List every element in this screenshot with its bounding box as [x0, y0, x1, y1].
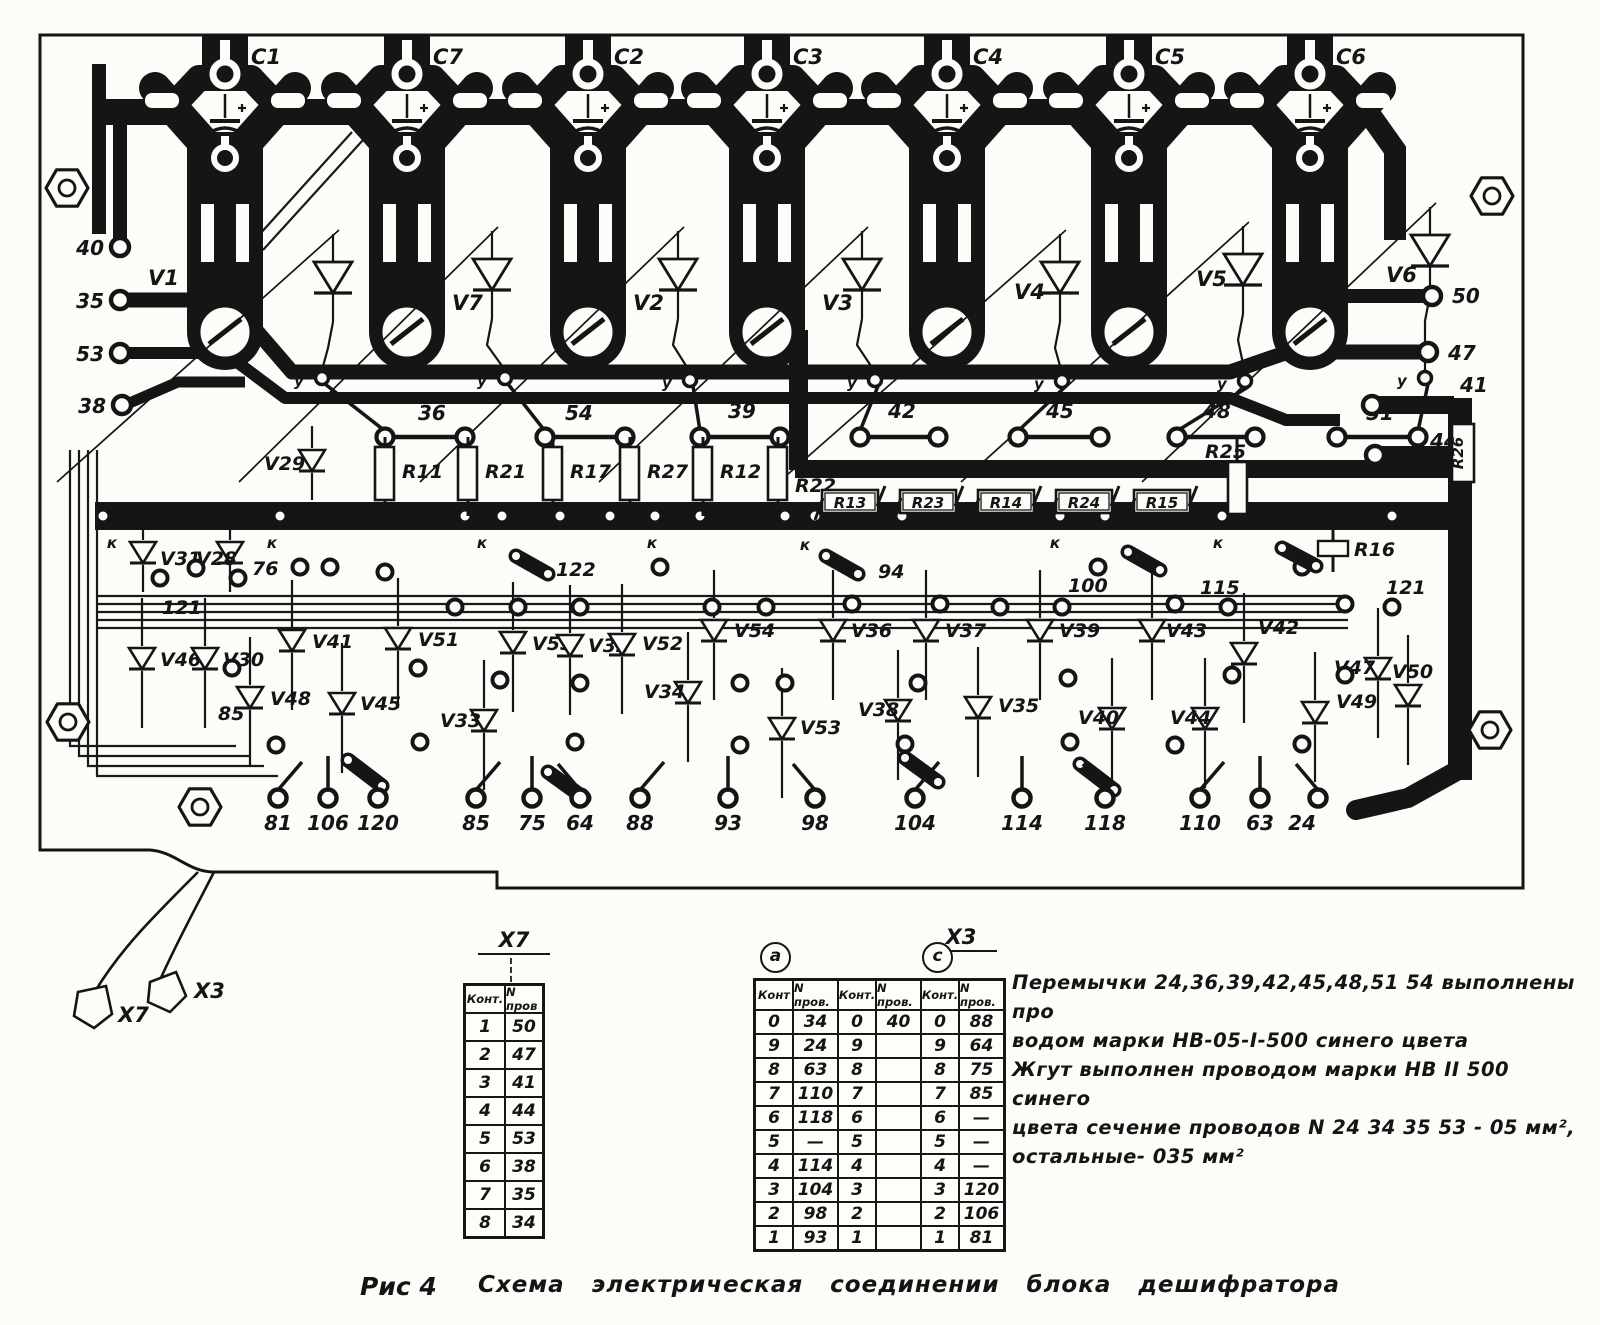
figure-number: Рис 4	[360, 1272, 437, 1301]
table-cell: —	[959, 1154, 1004, 1178]
jumper-pad	[1010, 429, 1027, 446]
capacitor-label: C3	[793, 45, 823, 69]
jumper-pad	[692, 429, 709, 446]
table-cell: 93	[793, 1226, 838, 1250]
table-header-cell: N пров.	[959, 980, 1004, 1010]
resistor-label: R24	[1068, 494, 1100, 512]
bottom-pad	[807, 790, 824, 807]
capacitor-unit	[1049, 36, 1209, 370]
junction-pad	[1295, 737, 1310, 752]
table-cell: 114	[793, 1154, 838, 1178]
jumper-pad	[1169, 429, 1186, 446]
edge-pad-right	[1419, 343, 1437, 361]
table-cell: 2	[838, 1202, 876, 1226]
junction-pad	[1338, 668, 1353, 683]
table-header-cell: Конт.	[921, 980, 959, 1010]
diode-symbol	[279, 630, 305, 651]
junction-pad	[573, 676, 588, 691]
solder-bar-hole	[512, 552, 520, 560]
mounting-hole	[1471, 178, 1513, 214]
table-cell: 81	[959, 1226, 1004, 1250]
junction-pad	[705, 600, 720, 615]
diode-label: V40	[1078, 707, 1119, 729]
resistor-label: R11	[402, 461, 443, 483]
diode-symbol	[913, 620, 939, 641]
table-cell: 1	[755, 1226, 793, 1250]
table-cell: 64	[959, 1034, 1004, 1058]
x7-flag-label: X7	[116, 1003, 149, 1027]
jumper-pad	[1329, 429, 1346, 446]
resistor-label: R15	[1146, 494, 1178, 512]
junction-pad	[269, 738, 284, 753]
solder-bar-hole	[934, 778, 942, 786]
edge-pad-left-label: 40	[75, 236, 104, 260]
gate-jumper-link	[325, 384, 385, 431]
resistor-label: R14	[990, 494, 1022, 512]
junction-pad	[1061, 671, 1076, 686]
gate-pad	[1056, 375, 1069, 388]
wire-number: 121	[1386, 577, 1426, 599]
x3-flag-label: X3	[192, 979, 225, 1003]
table-cell: 104	[793, 1178, 838, 1202]
diode-label: V35	[998, 695, 1039, 717]
diode-symbol	[1139, 620, 1165, 641]
table-cell: 118	[793, 1106, 838, 1130]
capacitor-unit	[1230, 36, 1390, 370]
pad-lead	[278, 762, 302, 790]
junction-pad	[778, 676, 793, 691]
capacitor-label: C7	[433, 45, 463, 69]
table-cell: 98	[793, 1202, 838, 1226]
table-cell: 0	[755, 1010, 793, 1034]
table-cell: 8	[838, 1058, 876, 1082]
bottom-pad-label: 93	[714, 811, 742, 835]
table-cell	[876, 1082, 921, 1106]
capacitor-unit	[687, 36, 847, 370]
table-cell: —	[793, 1130, 838, 1154]
jumper-number: 45	[1045, 399, 1074, 423]
wire-number: 76	[252, 558, 278, 580]
bus-via	[781, 512, 790, 521]
junction-pad	[993, 600, 1008, 615]
table-cell: 6	[838, 1106, 876, 1130]
table-header-cell: Конт.	[465, 985, 505, 1013]
table-header-cell: N пров	[505, 985, 543, 1013]
table-header-cell: Конт	[755, 980, 793, 1010]
junction-pad	[1091, 560, 1106, 575]
gate-pad	[869, 374, 882, 387]
junction-pad	[189, 561, 204, 576]
diode-label: V36	[851, 620, 892, 642]
resistor-label: R27	[647, 461, 689, 483]
bottom-pad	[572, 790, 589, 807]
junction-pad	[898, 737, 913, 752]
table-cell	[876, 1178, 921, 1202]
capacitor-label: C6	[1336, 45, 1366, 69]
edge-pad-right-label: 41	[1459, 373, 1488, 397]
cathode-label: к	[477, 534, 488, 552]
cathode-label: к	[267, 534, 278, 552]
diode-label: V39	[1059, 620, 1100, 642]
bus-bar	[95, 502, 1452, 530]
bottom-pad	[632, 790, 649, 807]
gate-wire	[857, 319, 875, 372]
diode-label: V43	[1166, 620, 1207, 642]
bottom-pad	[1192, 790, 1209, 807]
resistor-body	[458, 447, 477, 500]
jumper-number: 54	[565, 401, 593, 425]
solder-bar-hole	[1156, 566, 1164, 574]
bottom-pad	[1252, 790, 1269, 807]
table-cell	[876, 1226, 921, 1250]
gate-label: у	[294, 372, 305, 390]
bottom-pad-label: 63	[1246, 811, 1274, 835]
table-cell: 7	[465, 1181, 505, 1209]
jumper-number: 39	[728, 399, 756, 423]
table-cell: 9	[921, 1034, 959, 1058]
diode-symbol	[1231, 643, 1257, 664]
bus-via	[1388, 512, 1397, 521]
table-cell: 4	[755, 1154, 793, 1178]
diode-label: V48	[270, 688, 311, 710]
diode-symbol	[129, 648, 155, 669]
table-header-cell: N пров.	[793, 980, 838, 1010]
junction-pad	[568, 735, 583, 750]
table-cell: 24	[793, 1034, 838, 1058]
bus-via	[99, 512, 108, 521]
junction-pad	[933, 597, 948, 612]
resistor-label: R25	[1205, 441, 1246, 463]
table-cell: 85	[959, 1082, 1004, 1106]
gate-label: у	[477, 372, 488, 390]
junction-pad	[1385, 600, 1400, 615]
edge-pad-right-label: 50	[1452, 284, 1480, 308]
bottom-pad	[270, 790, 287, 807]
resistor-body	[543, 447, 562, 500]
diode-symbol	[965, 697, 991, 718]
diode-label: V37	[945, 620, 987, 642]
table-cell: 6	[921, 1106, 959, 1130]
pad-lead	[793, 764, 815, 790]
note-line: Перемычки 24,36,39,42,45,48,51 54 выполн…	[1012, 968, 1587, 1026]
resistor-body	[693, 447, 712, 500]
cathode-label: к	[800, 536, 811, 554]
bottom-pad	[370, 790, 387, 807]
junction-pad	[231, 571, 246, 586]
diode-label: V45	[360, 693, 401, 715]
junction-pad	[511, 600, 526, 615]
jumper-pad	[1247, 429, 1264, 446]
diode-label: V51	[418, 629, 459, 651]
thyristor-label: V6	[1386, 263, 1417, 287]
solder-bar-hole	[1278, 544, 1286, 552]
bottom-pad	[524, 790, 541, 807]
mounting-hole	[46, 170, 88, 206]
resistor-body	[1228, 462, 1247, 514]
table-cell	[876, 1058, 921, 1082]
bottom-pad	[720, 790, 737, 807]
table-cell: 38	[505, 1153, 543, 1181]
resistor-body	[1318, 541, 1348, 556]
table-cell: 41	[505, 1069, 543, 1097]
x7-flag	[74, 986, 112, 1028]
table-cell: 9	[755, 1034, 793, 1058]
pad-lead	[476, 762, 500, 790]
gate-label: у	[662, 374, 673, 392]
thyristor-label: V1	[148, 266, 179, 290]
junction-pad	[225, 661, 240, 676]
x3-group-c: с	[922, 942, 953, 973]
resistor-label: R16	[1354, 539, 1395, 561]
note-line: цвета сечение проводов N 24 34 35 53 - 0…	[1012, 1113, 1587, 1142]
bottom-pad	[1310, 790, 1327, 807]
diode-label: V33	[440, 710, 481, 732]
bottom-pad	[320, 790, 337, 807]
edge-pad-left	[113, 396, 131, 414]
table-cell: 106	[959, 1202, 1004, 1226]
edge-pad-left	[111, 344, 129, 362]
junction-pad	[413, 735, 428, 750]
junction-pad	[1221, 600, 1236, 615]
table-cell: 3	[838, 1178, 876, 1202]
table-cell: 4	[465, 1097, 505, 1125]
jumper-pad	[537, 429, 554, 446]
table-cell: 120	[959, 1178, 1004, 1202]
gate-label: у	[1397, 372, 1408, 390]
edge-pad-right	[1423, 287, 1441, 305]
bottom-pad-label: 118	[1084, 811, 1126, 835]
table-header-cell: N пров.	[876, 980, 921, 1010]
bus-via	[1218, 512, 1227, 521]
wire-number: 121	[162, 597, 202, 619]
mounting-hole	[47, 704, 89, 740]
x7-table-title: X7	[478, 928, 550, 955]
diode-label: V49	[1336, 691, 1377, 713]
table-cell	[876, 1034, 921, 1058]
table-cell: 47	[505, 1041, 543, 1069]
scanned-schematic-page: X7 X3	[0, 0, 1600, 1325]
capacitor-unit	[145, 36, 305, 370]
capacitor-label: C5	[1155, 45, 1185, 69]
gate-pad	[1419, 372, 1432, 385]
junction-pad	[1055, 600, 1070, 615]
bottom-pad-label: 75	[518, 811, 546, 835]
solder-bar-hole	[544, 570, 552, 578]
bus-via	[651, 512, 660, 521]
table-cell: 1	[465, 1013, 505, 1041]
junction-pad	[378, 565, 393, 580]
table-cell: 4	[838, 1154, 876, 1178]
table-cell: 3	[755, 1178, 793, 1202]
table-cell: 75	[959, 1058, 1004, 1082]
solder-bar-hole	[901, 754, 909, 762]
note-line: остальные- 035 мм²	[1012, 1142, 1587, 1171]
diode-symbol	[1395, 685, 1421, 706]
jumper-pad	[457, 429, 474, 446]
jumper-number: 48	[1202, 399, 1231, 423]
bus-via	[276, 512, 285, 521]
junction-pad	[1168, 738, 1183, 753]
junction-pad	[1063, 735, 1078, 750]
upper-bar	[795, 460, 1457, 478]
junction-pad	[1338, 597, 1353, 612]
edge-pad-left	[111, 238, 129, 256]
junction-pad	[153, 571, 168, 586]
table-cell: 44	[505, 1097, 543, 1125]
table-cell	[876, 1154, 921, 1178]
diode-label: V38	[858, 699, 899, 721]
solder-bar-hole	[1124, 548, 1132, 556]
pad-lead	[1200, 762, 1224, 790]
table-cell: 7	[921, 1082, 959, 1106]
bottom-pad-label: 88	[626, 811, 654, 835]
table-cell: 8	[755, 1058, 793, 1082]
edge-pad-left-label: 35	[76, 289, 104, 313]
wire-number: 100	[1068, 575, 1108, 597]
wire-to-x3	[160, 872, 214, 980]
gate-jumper-link	[508, 384, 545, 431]
resistor-label: R26	[1449, 437, 1467, 469]
cathode-label: к	[647, 534, 658, 552]
bottom-pad	[1014, 790, 1031, 807]
table-cell: 110	[793, 1082, 838, 1106]
resistor-label: R13	[834, 494, 866, 512]
table-cell: —	[959, 1106, 1004, 1130]
junction-pad	[653, 560, 668, 575]
bottom-pad-label: 114	[1001, 811, 1043, 835]
thyristor-label: V3	[822, 291, 853, 315]
solder-bar-hole	[854, 570, 862, 578]
thyristor-symbol	[659, 231, 697, 319]
table-cell: 4	[921, 1154, 959, 1178]
table-cell: 5	[838, 1130, 876, 1154]
bus-via	[498, 512, 507, 521]
gate-pad	[499, 372, 512, 385]
jumper-pad	[1410, 429, 1427, 446]
gate-label: у	[1034, 375, 1045, 393]
jumper-number: 36	[418, 401, 446, 425]
resistor-label: R21	[485, 461, 526, 483]
diode-symbol	[701, 620, 727, 641]
diode-symbol	[500, 632, 526, 653]
table-cell: 88	[959, 1010, 1004, 1034]
table-cell: 1	[838, 1226, 876, 1250]
mounting-hole	[179, 789, 221, 825]
junction-pad	[1225, 668, 1240, 683]
diode-symbol	[769, 718, 795, 739]
jumper-pad	[1092, 429, 1109, 446]
cathode-label: к	[1213, 534, 1224, 552]
thyristor-label: V5	[1196, 267, 1227, 291]
gate-label: у	[1217, 375, 1228, 393]
diode-label: V52	[642, 633, 683, 655]
table-cell: 2	[921, 1202, 959, 1226]
wire-number: 122	[556, 559, 596, 581]
table-cell: 53	[505, 1125, 543, 1153]
diode-symbol	[385, 628, 411, 649]
bottom-pad-label: 24	[1288, 811, 1316, 835]
jumper-number: 42	[887, 399, 916, 423]
bottom-pad-label: 104	[894, 811, 936, 835]
resistor-label: R23	[912, 494, 944, 512]
solder-bar-hole	[822, 552, 830, 560]
diode-symbol	[1302, 702, 1328, 723]
diode-label: V44	[1170, 707, 1211, 729]
junction-pad	[448, 600, 463, 615]
cathode-label: к	[107, 534, 118, 552]
bus-via	[556, 512, 565, 521]
diode-label: V34	[644, 681, 685, 703]
table-cell: 2	[755, 1202, 793, 1226]
table-cell: 5	[921, 1130, 959, 1154]
table-cell: 34	[793, 1010, 838, 1034]
wire-number: 115	[1200, 577, 1240, 599]
solder-bar	[826, 556, 858, 574]
trace-v6-drop	[1368, 112, 1395, 240]
bus-via	[606, 512, 615, 521]
capacitor-label: C2	[614, 45, 644, 69]
table-cell: 34	[505, 1209, 543, 1237]
solder-bar-hole	[344, 756, 352, 764]
table-cell: 0	[921, 1010, 959, 1034]
capacitor-unit	[327, 36, 487, 370]
gate-wire	[673, 319, 690, 372]
capacitor-label: C1	[251, 45, 281, 69]
capacitor-unit	[867, 36, 1027, 370]
bottom-pad	[907, 790, 924, 807]
wire-number: 85	[218, 703, 244, 725]
capacitor-label: C4	[973, 45, 1003, 69]
table-cell: 6	[465, 1153, 505, 1181]
table-cell	[876, 1106, 921, 1130]
wire-number: 94	[878, 561, 904, 583]
bottom-pad-label: 85	[462, 811, 490, 835]
edge-pad-right	[1366, 446, 1384, 464]
table-cell: 2	[465, 1041, 505, 1069]
bottom-pad-label: 120	[357, 811, 399, 835]
x7-title-link	[510, 958, 512, 982]
junction-pad	[1168, 597, 1183, 612]
note-line: Жгут выполнен проводом марки НВ II 500 с…	[1012, 1055, 1587, 1113]
pad-lead	[640, 762, 664, 790]
gate-label: у	[847, 374, 858, 392]
table-cell: —	[959, 1130, 1004, 1154]
junction-pad	[323, 560, 338, 575]
jumper-pad	[930, 429, 947, 446]
table-cell: 1	[921, 1226, 959, 1250]
table-cell: 40	[876, 1010, 921, 1034]
junction-pad	[493, 673, 508, 688]
diode-label: V42	[1258, 617, 1299, 639]
x3-connection-table: КонтN пров.Конт.N пров.Конт.N пров.03404…	[753, 978, 1006, 1252]
jumper-pad	[772, 429, 789, 446]
junction-pad	[759, 600, 774, 615]
table-cell: 6	[755, 1106, 793, 1130]
thyristor-label: V4	[1014, 280, 1045, 304]
edge-pad-right	[1363, 396, 1381, 414]
resistor-label: R12	[720, 461, 761, 483]
junction-pad	[845, 597, 860, 612]
gate-pad	[684, 374, 697, 387]
table-cell: 0	[838, 1010, 876, 1034]
gate-wire	[322, 322, 333, 370]
table-cell: 63	[793, 1058, 838, 1082]
bottom-pad	[1097, 790, 1114, 807]
edge-pad-right-label: 47	[1447, 341, 1476, 365]
x3-flag	[148, 972, 186, 1012]
table-cell	[876, 1130, 921, 1154]
diode-symbol	[329, 693, 355, 714]
